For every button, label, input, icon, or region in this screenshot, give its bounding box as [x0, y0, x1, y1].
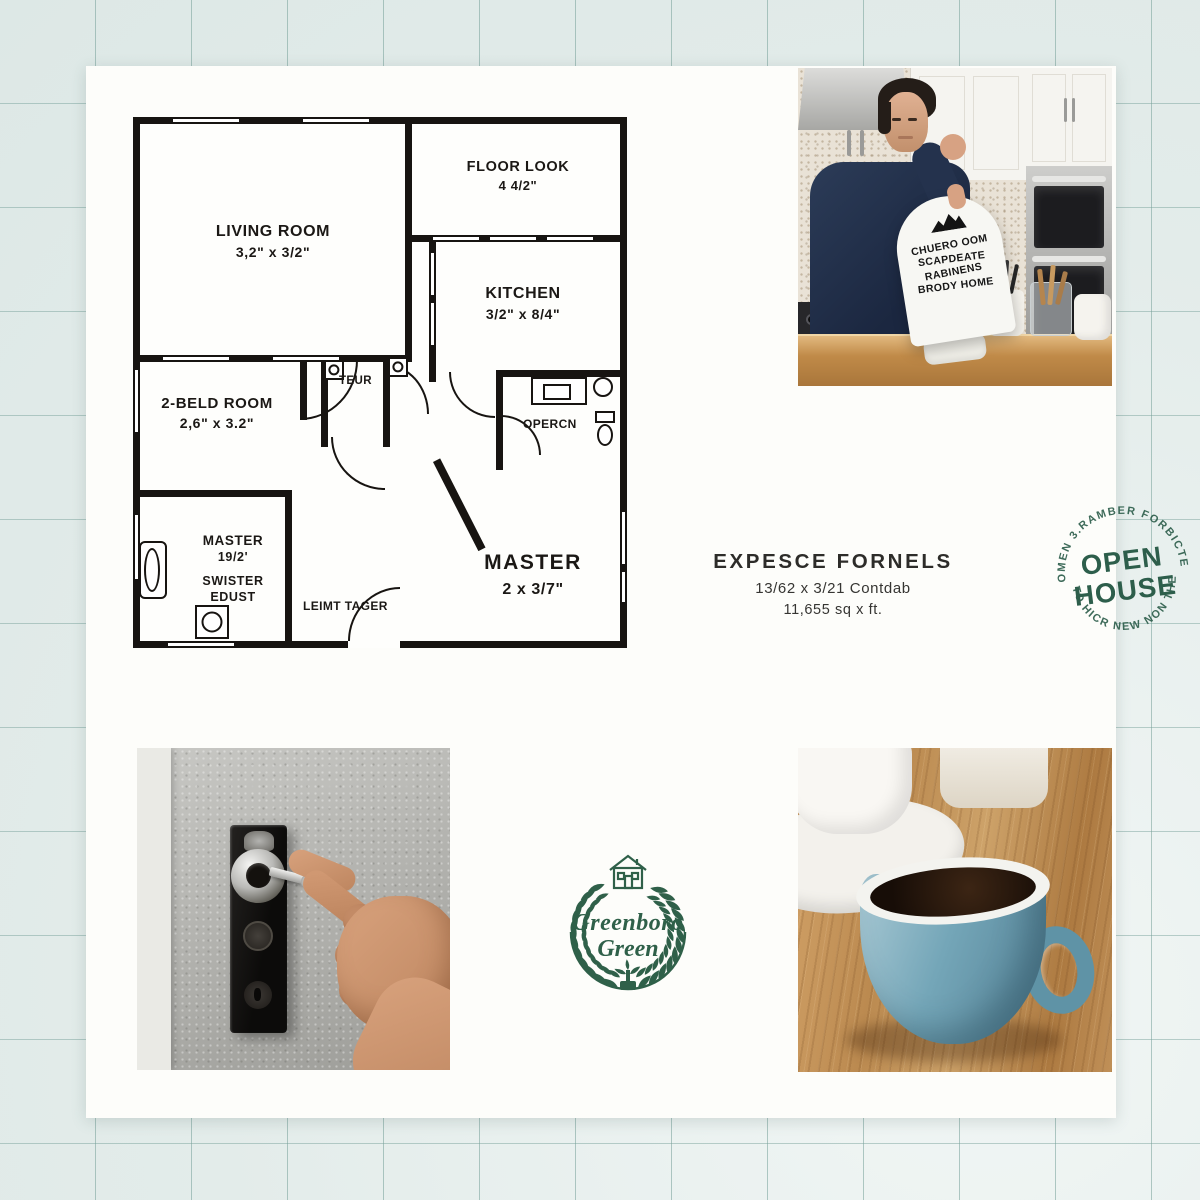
room-label-leimt: LEIMT TAGER: [303, 599, 388, 613]
moodboard-card: LIVING ROOM 3,2" x 3/2" FLOOR LOOK 4 4/2…: [86, 66, 1116, 1118]
kitchen-photo: CHUERO OOM SCAPDEATE RABINENS BRODY HOME: [798, 68, 1112, 386]
wall: [133, 490, 292, 497]
greenboro-logo: Greenboro Green: [548, 850, 708, 1000]
room-label-kitchen: KITCHEN 3/2" x 8/4": [485, 285, 560, 322]
room-dims: 3,2" x 3/2": [216, 244, 330, 260]
keyhole: [246, 863, 271, 888]
collage-page: LIVING ROOM 3,2" x 3/2" FLOOR LOOK 4 4/2…: [0, 0, 1200, 1200]
coffee-photo: [798, 748, 1112, 1072]
room-dims: 4 4/2": [467, 178, 570, 193]
room-label-opercn: OPERCN: [523, 417, 577, 431]
cabinet-handle: [860, 130, 864, 156]
room-name: EDUST: [202, 590, 263, 604]
door-arc: [449, 372, 495, 418]
room-label-bedroom: 2-BELD ROOM 2,6" x 3.2": [161, 395, 273, 431]
window: [547, 235, 593, 242]
logo-line2: Green: [597, 936, 658, 962]
room-name: FLOOR LOOK: [467, 159, 570, 175]
listing-dims: 13/62 x 3/21 Contdab: [698, 580, 968, 597]
lower-keyhole: [244, 981, 272, 1009]
window: [173, 117, 239, 124]
lock-crest: [244, 831, 274, 851]
room-name: MASTER: [202, 533, 263, 548]
window: [163, 355, 229, 362]
tall-cabinet: [1026, 68, 1112, 168]
key-photo: [137, 748, 450, 1070]
cabinet-handle: [847, 130, 851, 156]
light-fixture: [593, 377, 613, 397]
vanity-sink: [531, 377, 587, 405]
room-name: KITCHEN: [485, 285, 560, 303]
door-arc: [331, 437, 385, 490]
window: [429, 253, 436, 295]
mountain-icon: [924, 208, 967, 234]
window: [133, 370, 140, 432]
room-name: 2-BELD ROOM: [161, 395, 273, 412]
lock-medallion: [243, 921, 273, 951]
room-dims: 2,6" x 3.2": [161, 415, 273, 431]
open-house-stamp: OMEN 3.RAMBER FORBICTE TO HICR NEW NON T…: [1035, 477, 1200, 651]
man-sideburn: [878, 102, 891, 134]
room-name: MASTER: [484, 551, 582, 575]
window: [433, 235, 479, 242]
toilet: [595, 411, 615, 423]
room-dims: 2 x 3/7": [484, 581, 582, 599]
washer-icon: [388, 357, 408, 377]
listing-details: EXPESCE FORNELS 13/62 x 3/21 Contdab 11,…: [698, 550, 968, 618]
floor-plan: LIVING ROOM 3,2" x 3/2" FLOOR LOOK 4 4/2…: [133, 117, 627, 648]
door-frame: [137, 748, 171, 1070]
room-label-floor-look: FLOOR LOOK 4 4/2": [467, 159, 570, 193]
window: [429, 303, 436, 345]
listing-title: EXPESCE FORNELS: [698, 550, 968, 574]
canister: [940, 748, 1048, 808]
entry-gap: [348, 641, 400, 648]
pitcher: [1074, 294, 1111, 340]
room-label-master: MASTER 2 x 3/7": [484, 551, 582, 599]
listing-area: 11,655 sq x ft.: [698, 602, 968, 618]
room-dims: 19/2': [202, 550, 263, 564]
bathtub: [139, 541, 167, 599]
wall: [496, 370, 627, 377]
lock-plate: [230, 825, 287, 1033]
house-icon: [610, 856, 646, 888]
window: [620, 512, 627, 564]
door-arc: [348, 587, 400, 641]
tag-text: CHUERO OOM SCAPDEATE RABINENS BRODY HOME: [896, 231, 1009, 301]
window: [490, 235, 536, 242]
room-name: LIVING ROOM: [216, 223, 330, 241]
room-label-living: LIVING ROOM 3,2" x 3/2": [216, 223, 330, 260]
open-house-tag: CHUERO OOM SCAPDEATE RABINENS BRODY HOME: [889, 189, 1016, 348]
wall: [285, 490, 292, 648]
room-label-master-bath: MASTER 19/2' SWISTER EDUST: [202, 533, 263, 604]
room-name: SWISTER: [202, 574, 263, 588]
window: [168, 641, 234, 648]
window: [303, 117, 369, 124]
glass-jar: [1030, 282, 1072, 336]
sink: [195, 605, 229, 639]
room-label-teur: TEUR: [339, 375, 372, 387]
logo-line1: Greenboro: [572, 910, 683, 936]
toilet-bowl: [597, 424, 613, 446]
background-cup: [798, 748, 912, 834]
room-dims: 3/2" x 8/4": [485, 306, 560, 322]
window: [620, 572, 627, 602]
man-hand: [940, 134, 966, 160]
wall: [620, 117, 627, 648]
wall-diagonal: [433, 458, 486, 551]
